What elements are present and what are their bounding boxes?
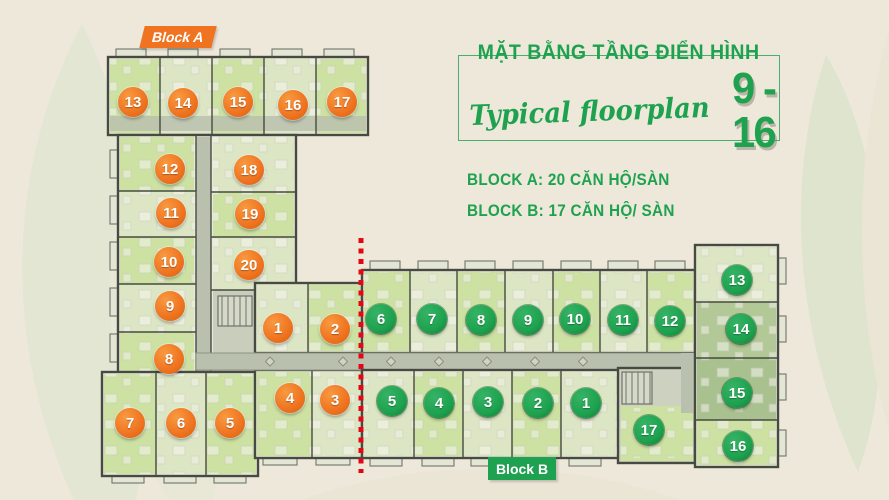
title-box: MẶT BẰNG TẦNG ĐIỂN HÌNH Typical floorpla… bbox=[458, 55, 780, 141]
title-english-script: Typical floorplan bbox=[469, 90, 710, 131]
title-vietnamese: MẶT BẰNG TẦNG ĐIỂN HÌNH bbox=[478, 41, 760, 65]
block-b-top-row bbox=[362, 261, 695, 353]
title-subtitle-row: Typical floorplan 9 - 16 bbox=[459, 67, 779, 155]
block-a-top-bar bbox=[108, 49, 368, 135]
block-a-bottom-left bbox=[102, 372, 258, 483]
block-a-label: Block A bbox=[139, 26, 216, 48]
floorplan-page: 1234567891011121314151617181920123456789… bbox=[0, 0, 889, 500]
legend-block-a: BLOCK A: 20 CĂN HỘ/SÀN bbox=[467, 170, 675, 190]
title-floor-range: 9 - 16 bbox=[732, 67, 777, 155]
legend-block-b: BLOCK B: 17 CĂN HỘ/ SÀN bbox=[467, 201, 675, 221]
legend: BLOCK A: 20 CĂN HỘ/SÀN BLOCK B: 17 CĂN H… bbox=[467, 170, 698, 232]
block-b-right-wing bbox=[681, 245, 786, 467]
block-b-label: Block B bbox=[488, 457, 556, 480]
block-a-connector bbox=[255, 283, 362, 465]
block-b-bottom-row bbox=[362, 370, 620, 466]
